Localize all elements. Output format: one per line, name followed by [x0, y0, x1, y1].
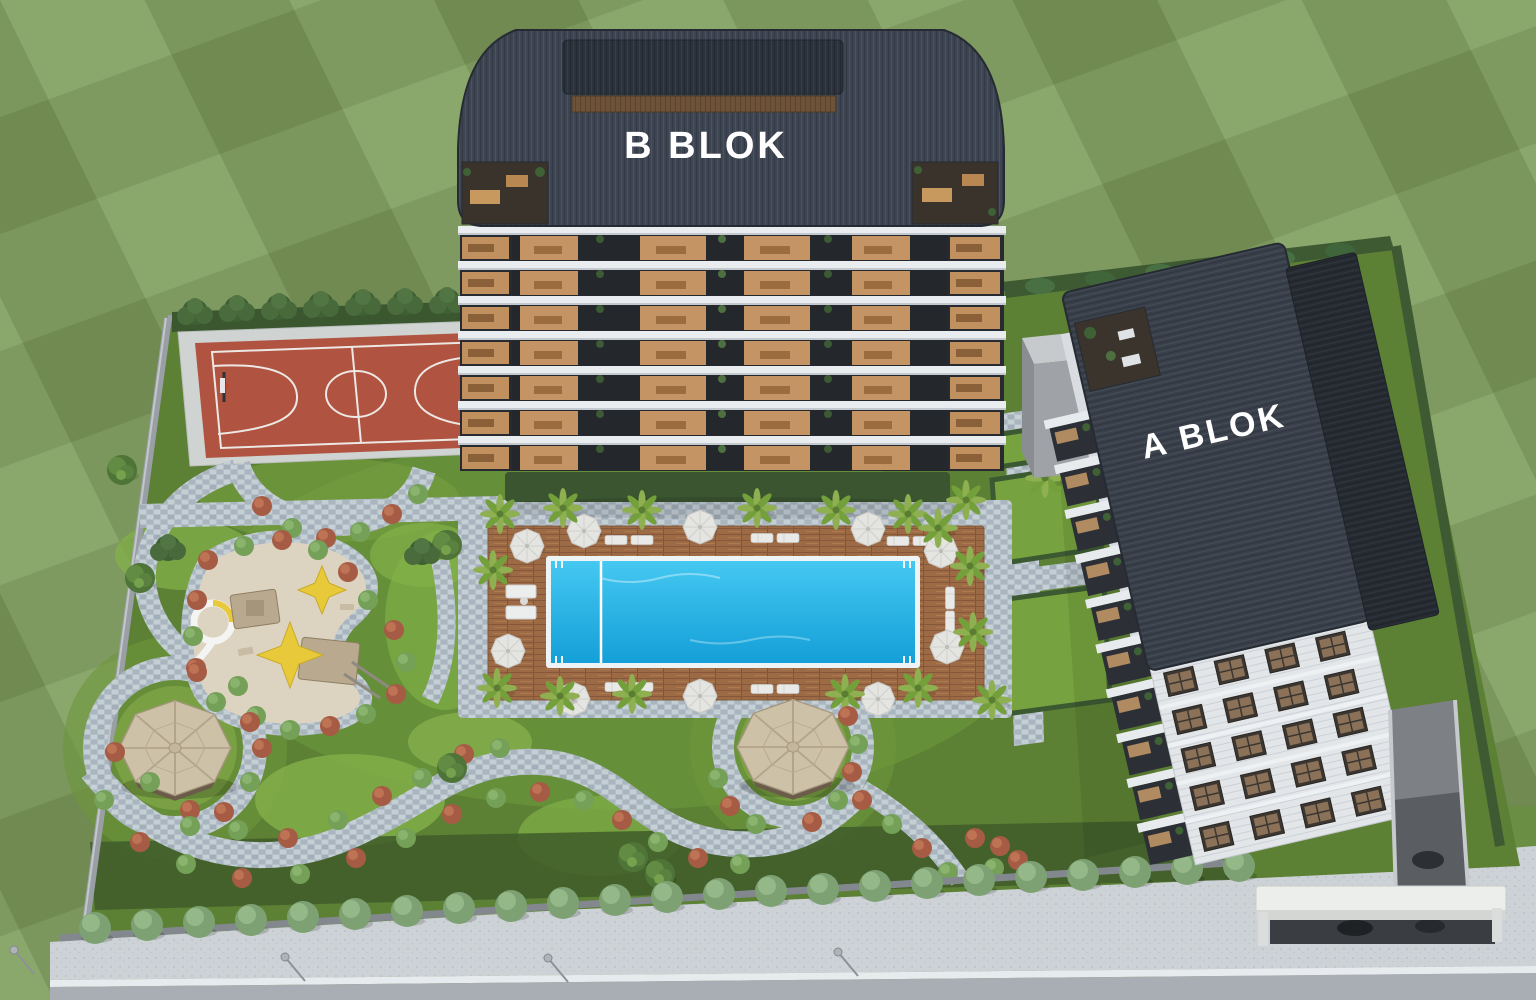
pool-complex — [458, 458, 1065, 720]
b-blok-roof-terrace-east — [912, 162, 998, 224]
site-plan-render: B BLOK A BLOK — [0, 0, 1536, 1000]
entrance-canopy — [1256, 886, 1506, 912]
b-blok-roof-box — [563, 40, 843, 94]
b-blok-facade — [458, 226, 1006, 471]
b-blok-label: B BLOK — [624, 125, 788, 167]
building-b-blok: B BLOK — [458, 30, 1006, 471]
b-blok-roof-wood-band — [572, 96, 836, 112]
pool-water — [551, 561, 915, 663]
car — [1415, 919, 1445, 933]
play-tower-a — [230, 589, 280, 629]
b-blok-roof-terrace-west — [462, 162, 548, 224]
car — [1337, 920, 1373, 936]
canopy-shade — [1270, 920, 1495, 944]
car — [1412, 851, 1444, 869]
render-canvas: B BLOK A BLOK — [0, 0, 1536, 1000]
